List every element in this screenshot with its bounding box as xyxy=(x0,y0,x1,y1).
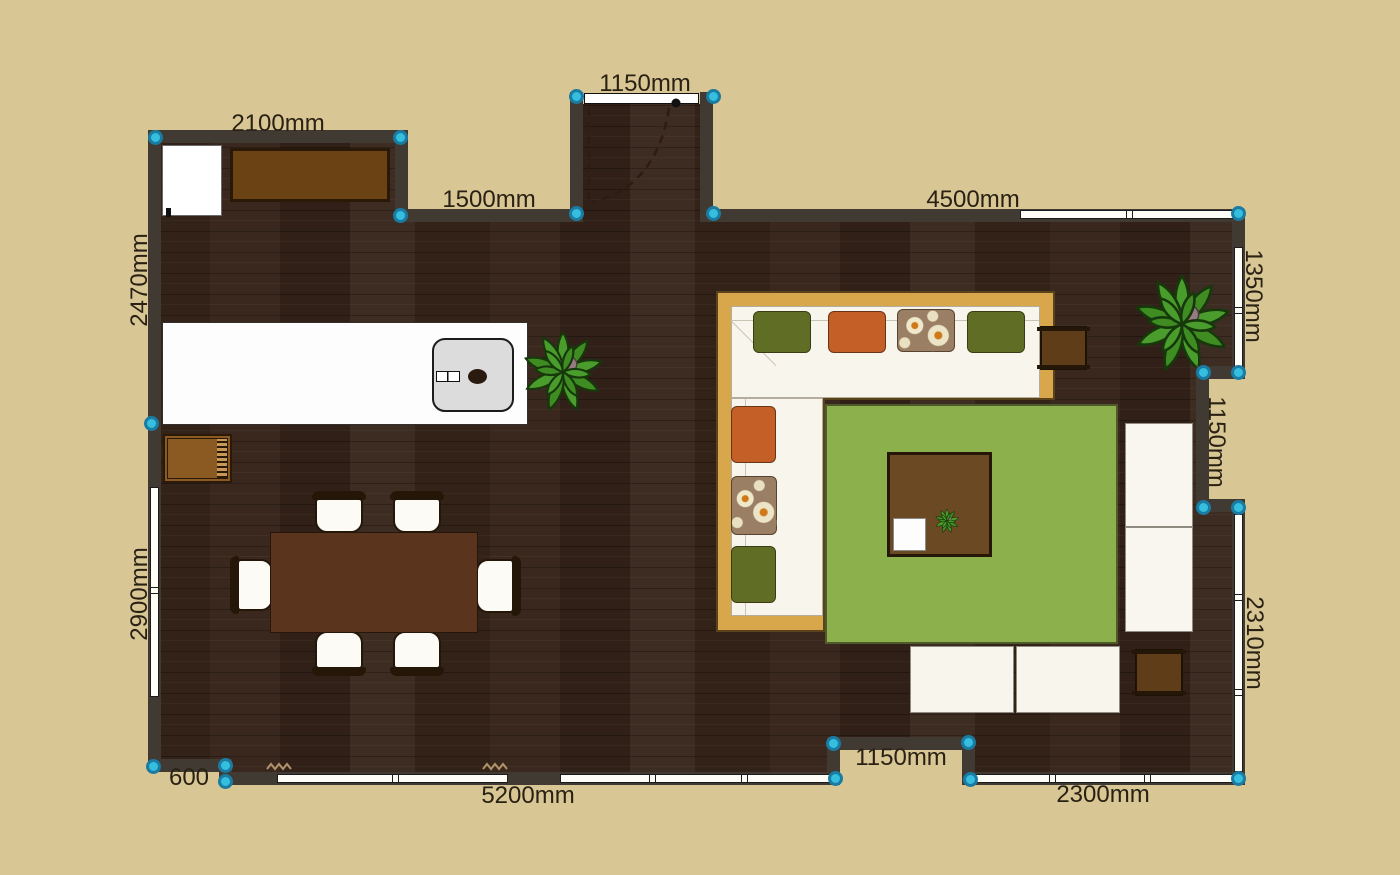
sofa-pillow-floral[interactable] xyxy=(731,476,777,535)
corner-marker[interactable] xyxy=(963,772,978,787)
dimension-label: 2310mm xyxy=(1242,596,1266,689)
chair-seat xyxy=(237,559,273,611)
ottoman[interactable] xyxy=(1016,646,1120,713)
plant[interactable] xyxy=(520,329,606,415)
sofa-pillow-olive[interactable] xyxy=(753,311,811,353)
dimension-label: 1150mm xyxy=(855,746,947,770)
vent-squiggle xyxy=(266,762,292,771)
side-table-rail xyxy=(1037,327,1090,331)
side-table[interactable] xyxy=(1040,326,1087,370)
corner-marker[interactable] xyxy=(393,130,408,145)
dining-chair[interactable] xyxy=(476,556,521,616)
ottoman[interactable] xyxy=(910,646,1014,713)
dimension-label: 2470mm xyxy=(128,233,152,326)
sofa-pillow-olive[interactable] xyxy=(731,546,776,603)
cart-stripes xyxy=(217,439,227,478)
dining-chair[interactable] xyxy=(312,491,366,533)
dimension-label: 2900mm xyxy=(128,547,152,640)
corner-marker[interactable] xyxy=(218,758,233,773)
dimension-label: 1350mm xyxy=(1241,249,1265,342)
window-mullion xyxy=(649,774,656,783)
corner-marker[interactable] xyxy=(1231,206,1246,221)
corner-marker[interactable] xyxy=(393,208,408,223)
corner-marker[interactable] xyxy=(826,736,841,751)
dimension-label: 1150mm xyxy=(599,72,691,96)
sink-faucet xyxy=(436,371,460,382)
sofa-pillow-olive[interactable] xyxy=(967,311,1025,353)
corner-marker[interactable] xyxy=(706,206,721,221)
corner-marker[interactable] xyxy=(146,759,161,774)
sink[interactable] xyxy=(432,338,514,412)
sofa-pillow-floral[interactable] xyxy=(897,309,955,352)
chair-seat xyxy=(476,559,514,613)
corner-marker[interactable] xyxy=(144,416,159,431)
white-seat-unit[interactable] xyxy=(1125,527,1193,632)
floorplan-canvas: 2100mm1150mm1500mm4500mm2470mm1350mm1150… xyxy=(0,0,1400,875)
corner-marker[interactable] xyxy=(1231,771,1246,786)
chair-seat xyxy=(315,498,363,533)
dimension-label: 5200mm xyxy=(481,784,574,808)
corner-marker[interactable] xyxy=(1231,365,1246,380)
sofa-pillow-orange[interactable] xyxy=(828,311,886,353)
kitchen-counter[interactable] xyxy=(230,148,390,202)
vent-squiggle xyxy=(482,762,508,771)
side-table[interactable] xyxy=(1135,649,1183,696)
side-table-rail xyxy=(1132,691,1186,695)
coffee-table-tray[interactable] xyxy=(893,518,926,551)
corner-marker[interactable] xyxy=(1231,500,1246,515)
dining-table[interactable] xyxy=(270,532,478,633)
corner-marker[interactable] xyxy=(1196,365,1211,380)
side-table-rail xyxy=(1037,365,1090,369)
window-mullion xyxy=(1234,689,1243,696)
sink-drain xyxy=(468,369,487,384)
window-mullion xyxy=(1049,774,1056,783)
fridge-hinge xyxy=(166,208,171,217)
corner-marker[interactable] xyxy=(148,130,163,145)
chair-seat xyxy=(315,631,363,669)
dimension-label: 1150mm xyxy=(1204,396,1228,488)
corner-marker[interactable] xyxy=(1196,500,1211,515)
dimension-label: 1500mm xyxy=(442,188,535,212)
plant[interactable] xyxy=(1130,272,1234,376)
chair-seat xyxy=(393,631,441,669)
corner-marker[interactable] xyxy=(706,89,721,104)
door-swing xyxy=(560,85,720,225)
plant[interactable] xyxy=(934,508,960,534)
window[interactable] xyxy=(277,774,508,783)
window-mullion xyxy=(1126,210,1133,219)
corner-marker[interactable] xyxy=(569,206,584,221)
dimension-label: 4500mm xyxy=(926,188,1019,212)
corner-marker[interactable] xyxy=(218,774,233,789)
kitchen-cart[interactable] xyxy=(163,434,232,483)
dining-chair[interactable] xyxy=(312,631,366,676)
dining-chair[interactable] xyxy=(390,631,444,676)
dimension-label: 2100mm xyxy=(231,112,324,136)
dimension-label: 600 xyxy=(169,766,209,790)
dining-chair[interactable] xyxy=(390,491,444,533)
sofa-pillow-orange[interactable] xyxy=(731,406,776,463)
side-table-rail xyxy=(1132,650,1186,654)
dining-chair[interactable] xyxy=(230,556,273,614)
corner-marker[interactable] xyxy=(828,771,843,786)
window[interactable] xyxy=(560,774,833,783)
fridge[interactable] xyxy=(162,145,222,216)
white-seat-unit[interactable] xyxy=(1125,423,1193,527)
chair-seat xyxy=(393,498,441,533)
window-mullion xyxy=(392,774,399,783)
corner-marker[interactable] xyxy=(961,735,976,750)
window[interactable] xyxy=(1020,210,1236,219)
corner-marker[interactable] xyxy=(569,89,584,104)
window-mullion xyxy=(741,774,748,783)
dimension-label: 2300mm xyxy=(1056,783,1149,807)
